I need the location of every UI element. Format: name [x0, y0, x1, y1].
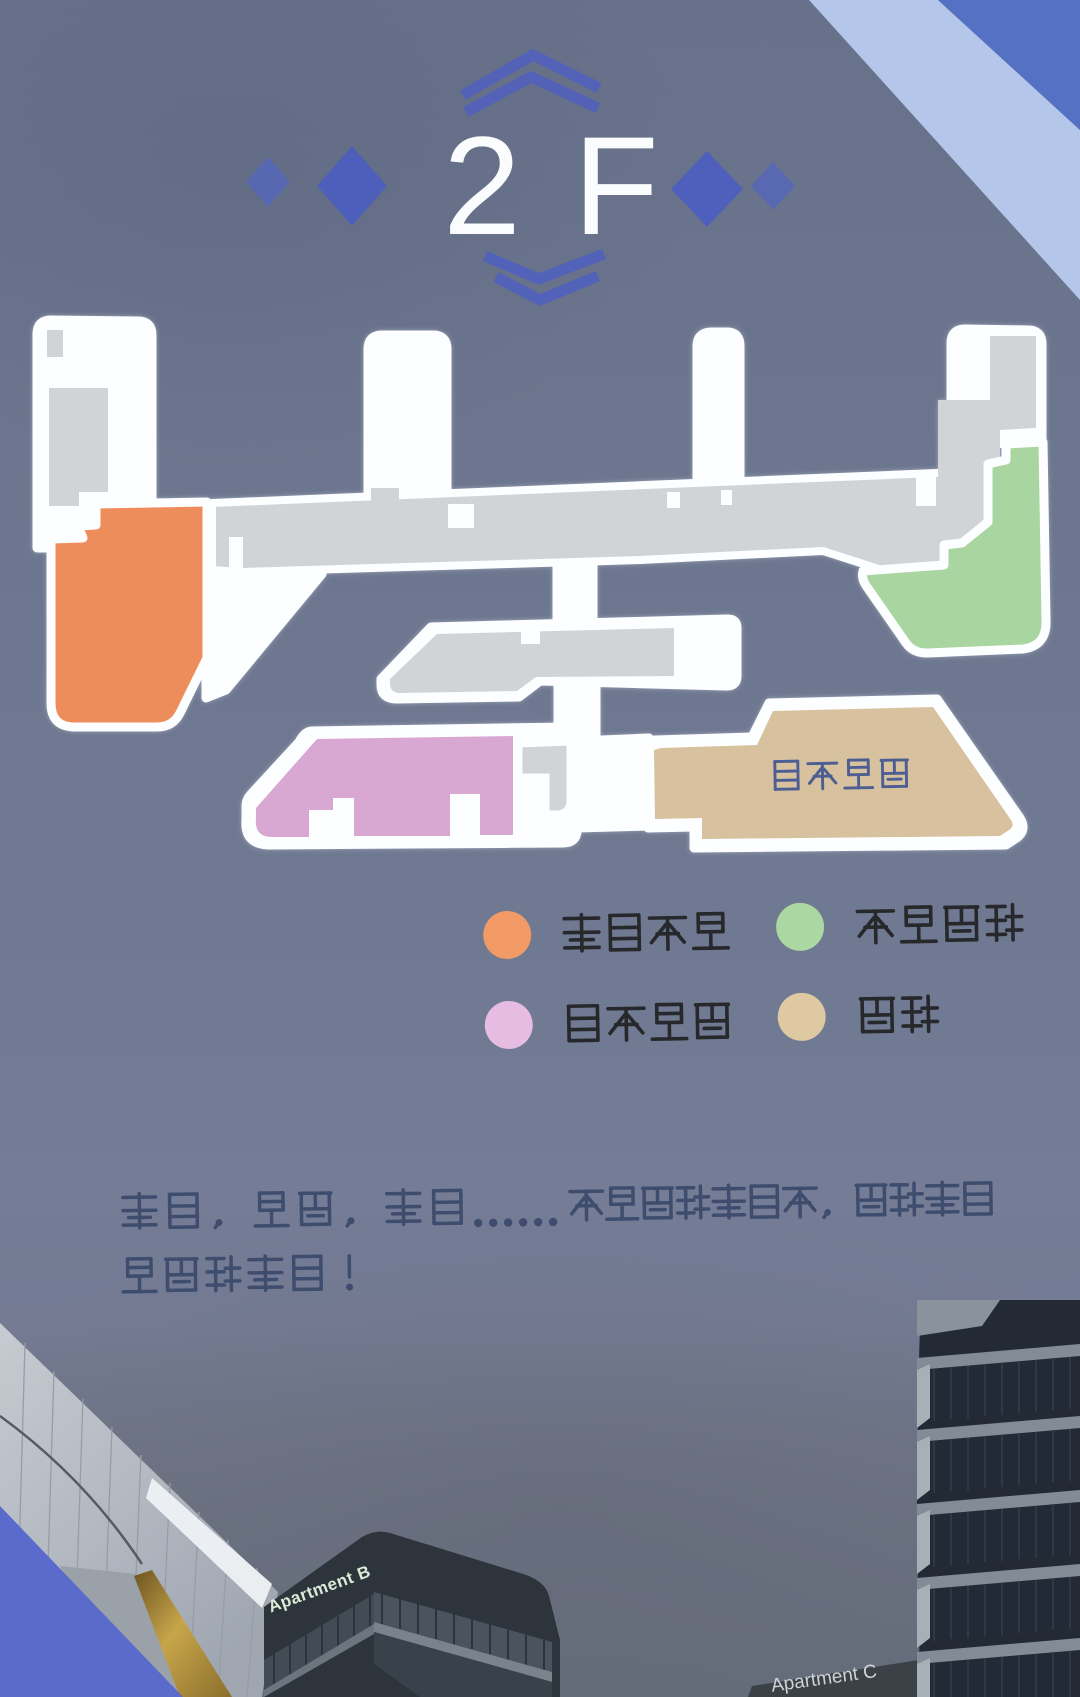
- svg-text:2: 2: [443, 107, 521, 264]
- svg-text:F: F: [573, 107, 659, 264]
